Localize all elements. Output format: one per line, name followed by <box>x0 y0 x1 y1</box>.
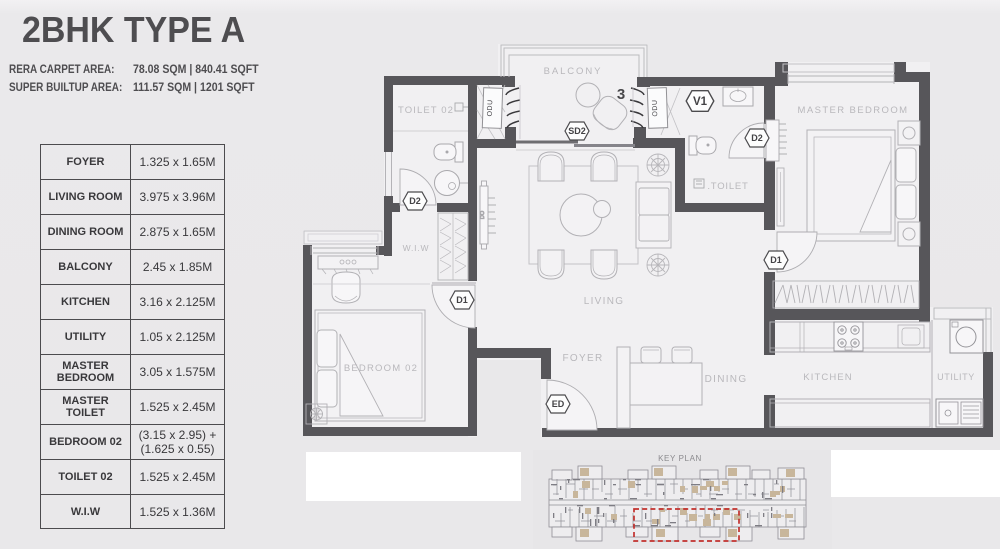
svg-text:3: 3 <box>617 86 625 103</box>
svg-text:W.I.W: W.I.W <box>403 243 430 253</box>
svg-text:BEDROOM 02: BEDROOM 02 <box>344 363 418 374</box>
svg-text:FOYER: FOYER <box>563 353 604 364</box>
svg-text:UTILITY: UTILITY <box>937 372 975 382</box>
svg-text:ED: ED <box>552 399 565 409</box>
svg-text:ODU: ODU <box>487 99 495 116</box>
svg-text:D1: D1 <box>456 295 468 305</box>
svg-text:BALCONY: BALCONY <box>544 66 603 77</box>
svg-text:KITCHEN: KITCHEN <box>803 372 852 383</box>
svg-text:DO: DO <box>480 210 486 219</box>
svg-text:D2: D2 <box>751 133 763 143</box>
svg-text:LIVING: LIVING <box>584 296 625 307</box>
svg-text:D2: D2 <box>409 196 421 206</box>
svg-text:SD2: SD2 <box>568 126 586 136</box>
svg-text:ODU: ODU <box>652 99 660 116</box>
svg-text:DINING: DINING <box>705 374 748 385</box>
svg-text:KEY PLAN: KEY PLAN <box>658 454 702 463</box>
svg-text:MASTER BEDROOM: MASTER BEDROOM <box>798 105 909 116</box>
svg-text:V1: V1 <box>693 96 708 108</box>
svg-text:TOILET 02: TOILET 02 <box>398 105 454 116</box>
svg-text:D1: D1 <box>770 255 782 265</box>
svg-text:.TOILET: .TOILET <box>707 181 748 192</box>
